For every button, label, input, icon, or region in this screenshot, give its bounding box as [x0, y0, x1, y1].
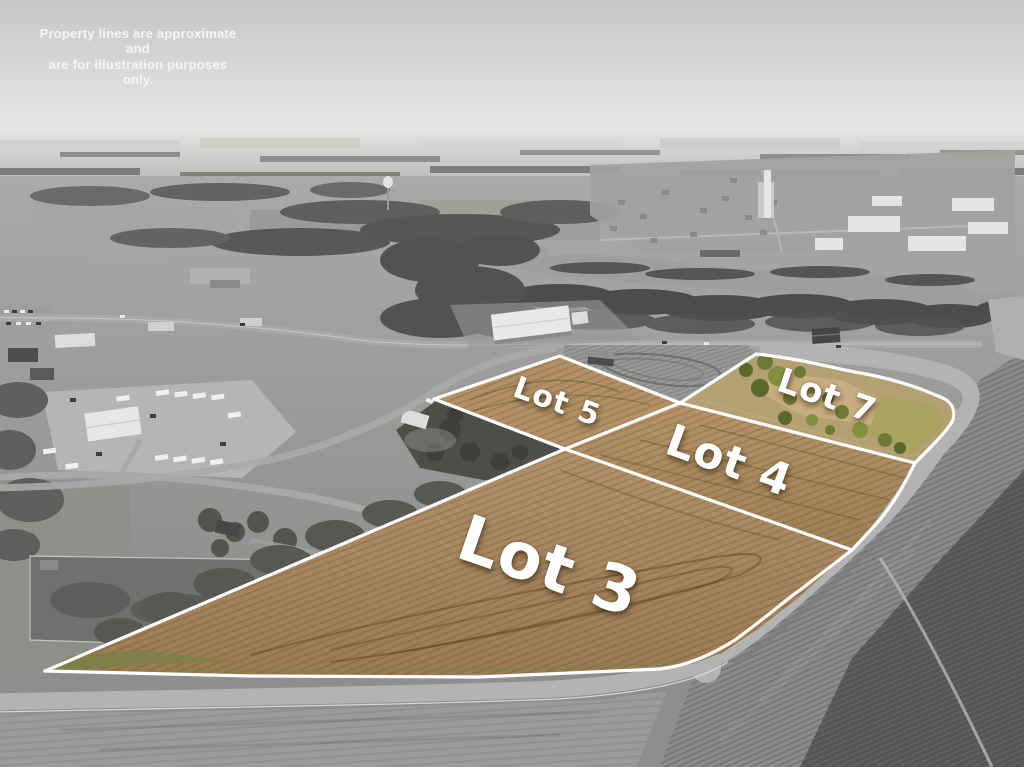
aerial-photo-background [0, 0, 1024, 767]
disclaimer-line-1: Property lines are approximate and [34, 26, 242, 57]
disclaimer-line-2: are for illustration purposes only. [34, 57, 242, 88]
aerial-lot-photo: Property lines are approximate and are f… [0, 0, 1024, 767]
disclaimer-note: Property lines are approximate and are f… [34, 26, 242, 87]
